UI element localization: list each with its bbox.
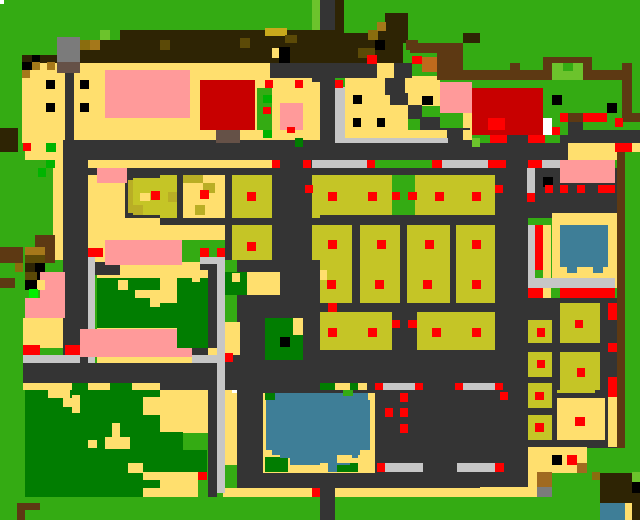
map-rect: [46, 160, 55, 168]
map-rect: [23, 355, 80, 363]
map-rect: [335, 488, 480, 497]
map-rect: [279, 47, 290, 63]
map-rect: [535, 225, 543, 270]
map-rect: [608, 343, 617, 352]
map-rect: [528, 160, 542, 168]
map-rect: [412, 56, 422, 64]
map-rect: [303, 465, 320, 473]
map-rect: [22, 70, 30, 78]
map-rect: [608, 377, 617, 397]
map-rect: [440, 160, 480, 168]
map-rect: [425, 240, 434, 249]
map-rect: [328, 328, 337, 337]
map-rect: [400, 408, 408, 417]
map-rect: [65, 345, 80, 355]
map-rect: [472, 328, 481, 337]
map-rect: [0, 0, 4, 4]
map-rect: [422, 96, 433, 105]
map-rect: [543, 63, 552, 80]
map-rect: [632, 143, 640, 152]
map-rect: [143, 397, 160, 415]
map-rect: [617, 152, 625, 450]
map-rect: [280, 103, 303, 130]
map-rect: [177, 328, 208, 348]
map-rect: [457, 463, 480, 472]
map-rect: [312, 160, 320, 168]
map-rect: [320, 225, 352, 303]
map-rect: [312, 488, 320, 497]
map-rect: [128, 180, 133, 213]
map-rect: [560, 130, 568, 135]
map-rect: [232, 273, 240, 282]
map-rect: [295, 80, 303, 88]
map-rect: [560, 113, 568, 122]
map-rect: [500, 392, 508, 400]
map-rect: [29, 289, 38, 298]
map-rect: [65, 73, 74, 140]
map-rect: [200, 248, 209, 257]
map-rect: [543, 118, 552, 135]
map-rect: [57, 62, 80, 73]
map-rect: [560, 225, 608, 267]
map-rect: [151, 191, 160, 200]
map-rect: [535, 423, 544, 432]
map-rect: [128, 463, 143, 473]
map-rect: [25, 255, 35, 263]
map-rect: [337, 455, 352, 463]
map-rect: [247, 242, 256, 251]
map-rect: [272, 160, 280, 168]
map-rect: [528, 278, 615, 288]
map-rect: [568, 141, 617, 160]
map-rect: [328, 240, 337, 249]
map-rect: [437, 52, 463, 70]
map-rect: [63, 398, 72, 407]
map-rect: [490, 135, 507, 143]
map-rect: [80, 80, 89, 89]
map-rect: [472, 192, 481, 201]
map-rect: [622, 113, 640, 122]
map-rect: [568, 122, 583, 130]
map-rect: [567, 267, 577, 273]
map-rect: [583, 113, 607, 122]
map-rect: [25, 263, 35, 272]
map-rect: [46, 143, 56, 152]
map-rect: [320, 383, 335, 390]
map-rect: [272, 447, 280, 455]
map-rect: [615, 143, 632, 152]
map-rect: [25, 247, 35, 255]
map-rect: [528, 288, 543, 298]
map-rect: [312, 225, 320, 260]
map-rect: [150, 297, 160, 307]
map-rect: [472, 88, 543, 135]
map-rect: [528, 135, 545, 143]
map-rect: [143, 472, 160, 480]
map-rect: [488, 118, 505, 130]
map-rect: [133, 205, 143, 215]
map-rect: [200, 80, 255, 130]
map-rect: [615, 118, 623, 127]
map-rect: [560, 288, 615, 298]
map-rect: [527, 193, 535, 202]
map-rect: [587, 448, 640, 473]
map-rect: [528, 473, 537, 497]
map-rect: [368, 192, 377, 201]
map-rect: [420, 117, 440, 130]
map-rect: [160, 40, 170, 50]
map-rect: [208, 268, 217, 348]
map-rect: [375, 40, 385, 50]
map-rect: [537, 472, 552, 487]
map-rect: [440, 82, 472, 113]
map-rect: [217, 260, 225, 493]
map-rect: [510, 63, 520, 72]
map-rect: [527, 168, 535, 193]
map-rect: [375, 383, 383, 390]
map-rect: [575, 417, 585, 426]
map-rect: [208, 390, 217, 497]
map-rect: [495, 383, 503, 390]
map-rect: [15, 263, 23, 272]
map-rect: [432, 160, 442, 168]
map-rect: [568, 130, 640, 143]
map-rect: [577, 463, 587, 473]
map-rect: [392, 192, 400, 200]
map-rect: [110, 383, 132, 390]
game-map[interactable]: [0, 0, 640, 520]
map-rect: [97, 168, 127, 183]
map-rect: [223, 390, 237, 465]
map-rect: [328, 303, 337, 312]
map-rect: [537, 487, 552, 497]
map-rect: [48, 390, 70, 398]
map-rect: [305, 185, 313, 193]
map-rect: [415, 383, 423, 390]
map-rect: [328, 192, 337, 201]
map-rect: [88, 440, 97, 448]
map-rect: [72, 395, 80, 413]
map-rect: [358, 383, 367, 390]
map-rect: [367, 160, 375, 168]
map-rect: [472, 280, 481, 289]
map-rect: [160, 363, 237, 390]
map-rect: [263, 95, 272, 103]
map-rect: [568, 113, 583, 122]
map-rect: [195, 205, 205, 215]
map-rect: [266, 400, 370, 450]
map-rect: [0, 247, 23, 263]
map-rect: [456, 225, 495, 303]
map-rect: [360, 225, 400, 303]
map-rect: [352, 225, 360, 260]
map-rect: [350, 383, 358, 390]
map-rect: [385, 463, 423, 472]
map-rect: [632, 482, 640, 493]
map-rect: [192, 355, 217, 363]
map-rect: [535, 392, 544, 400]
map-rect: [160, 273, 177, 303]
map-rect: [563, 63, 573, 71]
map-rect: [47, 62, 55, 70]
map-rect: [407, 225, 450, 303]
map-rect: [217, 248, 225, 257]
map-rect: [72, 383, 88, 390]
map-rect: [545, 135, 560, 143]
map-rect: [560, 185, 568, 193]
map-rect: [168, 192, 177, 202]
map-rect: [293, 318, 303, 335]
map-rect: [265, 28, 287, 36]
map-rect: [37, 280, 45, 290]
map-rect: [432, 328, 441, 337]
map-rect: [0, 278, 15, 288]
map-rect: [600, 503, 625, 520]
map-rect: [622, 63, 632, 113]
map-rect: [83, 160, 272, 168]
map-rect: [545, 185, 553, 193]
map-rect: [312, 0, 320, 30]
map-rect: [377, 22, 386, 31]
map-rect: [417, 312, 495, 350]
map-rect: [192, 273, 200, 282]
map-rect: [57, 37, 80, 62]
map-rect: [320, 472, 335, 520]
map-rect: [400, 424, 408, 433]
map-rect: [392, 320, 400, 328]
map-rect: [383, 383, 415, 390]
map-rect: [480, 383, 495, 390]
map-rect: [377, 118, 385, 127]
map-rect: [343, 390, 353, 396]
map-rect: [368, 30, 378, 40]
map-rect: [25, 272, 37, 280]
map-rect: [80, 40, 90, 50]
map-rect: [552, 455, 562, 465]
map-rect: [543, 225, 551, 278]
map-rect: [22, 62, 32, 70]
map-rect: [80, 329, 192, 357]
map-rect: [63, 140, 568, 160]
map-rect: [552, 95, 562, 105]
map-rect: [23, 143, 31, 151]
map-rect: [408, 320, 417, 328]
map-rect: [552, 127, 560, 135]
map-rect: [463, 130, 472, 140]
map-rect: [312, 175, 320, 218]
map-rect: [160, 432, 183, 450]
map-rect: [560, 160, 615, 183]
map-rect: [105, 437, 130, 449]
map-rect: [495, 463, 504, 472]
map-rect: [280, 337, 290, 347]
map-rect: [160, 390, 208, 433]
map-rect: [632, 472, 640, 482]
map-rect: [140, 193, 150, 201]
map-rect: [377, 240, 386, 249]
map-rect: [35, 263, 45, 272]
map-rect: [435, 192, 444, 201]
map-rect: [35, 255, 45, 263]
map-rect: [537, 360, 545, 368]
map-rect: [480, 135, 490, 143]
map-rect: [247, 192, 256, 201]
map-rect: [600, 472, 632, 503]
map-rect: [408, 192, 417, 200]
map-rect: [463, 33, 480, 43]
map-rect: [35, 235, 45, 247]
map-rect: [320, 160, 367, 168]
map-rect: [105, 240, 182, 265]
map-rect: [25, 298, 65, 318]
map-rect: [200, 257, 225, 264]
map-rect: [575, 320, 583, 328]
map-rect: [537, 328, 545, 337]
map-rect: [288, 465, 300, 473]
map-rect: [577, 368, 585, 377]
map-rect: [46, 80, 55, 89]
map-rect: [275, 393, 320, 403]
map-rect: [377, 463, 385, 472]
map-rect: [183, 175, 203, 183]
map-rect: [375, 280, 384, 289]
map-rect: [0, 128, 18, 152]
map-rect: [265, 457, 288, 472]
map-rect: [263, 107, 271, 114]
map-rect: [32, 62, 40, 70]
map-rect: [46, 103, 55, 112]
map-rect: [335, 383, 350, 390]
map-rect: [495, 185, 503, 193]
map-rect: [598, 185, 615, 193]
map-rect: [160, 225, 225, 240]
map-rect: [263, 130, 272, 138]
map-rect: [225, 353, 233, 362]
map-rect: [23, 345, 40, 355]
map-rect: [353, 118, 361, 127]
map-rect: [608, 303, 617, 320]
map-rect: [528, 225, 535, 278]
map-rect: [415, 175, 495, 215]
map-rect: [223, 488, 312, 497]
map-rect: [38, 168, 46, 177]
map-rect: [90, 40, 100, 50]
map-rect: [200, 190, 209, 199]
map-rect: [400, 393, 408, 402]
map-rect: [480, 487, 528, 497]
map-rect: [472, 240, 481, 249]
map-rect: [423, 280, 432, 289]
map-rect: [320, 463, 328, 472]
map-rect: [472, 138, 480, 147]
map-rect: [543, 288, 551, 298]
map-rect: [45, 235, 55, 263]
map-rect: [358, 455, 367, 472]
map-rect: [608, 397, 617, 447]
map-rect: [335, 0, 344, 33]
map-rect: [607, 103, 617, 113]
map-rect: [216, 130, 240, 143]
map-rect: [577, 185, 585, 193]
map-rect: [285, 35, 297, 43]
map-rect: [80, 103, 89, 112]
map-rect: [287, 127, 295, 133]
map-rect: [353, 95, 362, 104]
map-rect: [240, 38, 250, 48]
map-rect: [345, 130, 447, 138]
map-rect: [625, 503, 632, 520]
map-rect: [437, 70, 632, 80]
map-rect: [320, 270, 327, 280]
map-rect: [100, 30, 110, 40]
map-rect: [303, 160, 311, 168]
map-rect: [488, 160, 506, 168]
map-rect: [592, 472, 600, 480]
map-rect: [367, 55, 377, 64]
map-rect: [35, 247, 45, 255]
map-rect: [198, 472, 207, 480]
map-rect: [542, 160, 560, 168]
map-rect: [160, 450, 207, 472]
map-rect: [385, 408, 393, 417]
map-rect: [25, 503, 40, 510]
map-rect: [143, 488, 160, 497]
map-rect: [368, 328, 377, 337]
map-rect: [335, 138, 448, 143]
map-rect: [225, 322, 240, 355]
map-rect: [567, 455, 577, 465]
map-rect: [88, 248, 103, 257]
map-rect: [232, 390, 237, 393]
map-rect: [632, 493, 640, 520]
map-rect: [593, 267, 603, 273]
map-rect: [557, 390, 595, 393]
map-rect: [583, 63, 592, 80]
map-rect: [335, 80, 343, 88]
map-rect: [265, 80, 273, 88]
map-rect: [23, 318, 65, 348]
map-rect: [17, 503, 25, 520]
map-rect: [295, 138, 303, 147]
map-rect: [247, 272, 280, 295]
map-rect: [480, 463, 495, 472]
map-rect: [455, 383, 463, 390]
map-rect: [160, 472, 198, 497]
map-rect: [105, 70, 190, 118]
map-rect: [118, 280, 128, 290]
map-rect: [327, 280, 336, 289]
